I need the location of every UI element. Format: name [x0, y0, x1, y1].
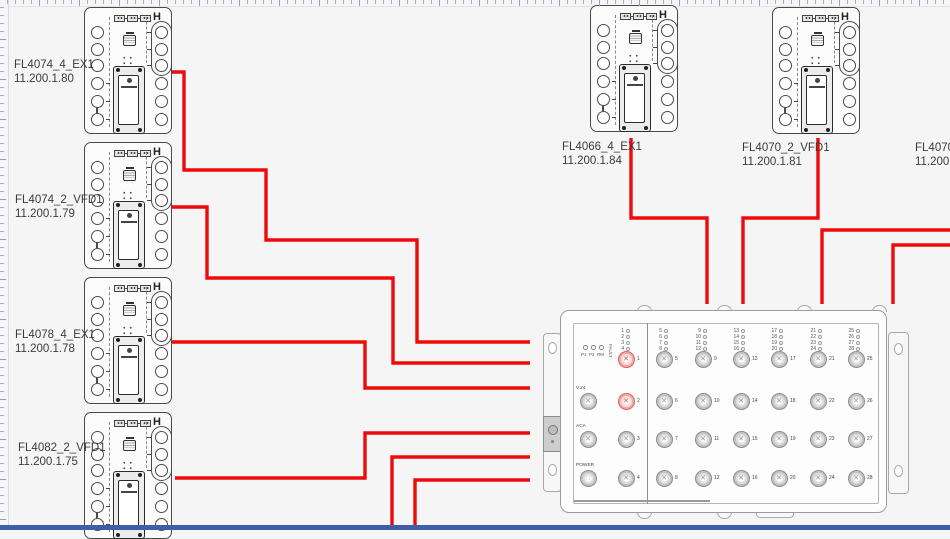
m12-port-circle: [661, 111, 674, 124]
switch-port-17: [771, 351, 788, 368]
device-ip: 11.200.1.81: [742, 155, 830, 169]
switch-port-27: [848, 431, 865, 448]
tick-mark: [835, 65, 839, 66]
led-circle: [664, 335, 669, 340]
connector-icon: [629, 33, 642, 44]
tick-mark: [147, 302, 151, 303]
device-label: FL4066_4_EX111.200.1.84: [562, 140, 642, 168]
screw-icon: [116, 533, 120, 537]
guide-line: [109, 422, 110, 532]
switch-port-number: 11: [714, 436, 719, 442]
connection-right-line-1-to-switch[interactable]: [822, 230, 950, 304]
terminal-block-icon: [127, 420, 138, 427]
terminal-link: [125, 18, 128, 19]
m12-port-circle: [91, 383, 104, 396]
m12-port-circle: [91, 296, 104, 309]
switch-port-28: [848, 470, 865, 487]
terminal-block-icon: [127, 15, 138, 22]
logo-icon: [127, 213, 132, 218]
led-circle: [741, 329, 746, 334]
terminal-block-icon: [620, 13, 631, 20]
m12-port-circle: [779, 43, 792, 56]
switch-port-8: [656, 470, 673, 487]
port-link-line: [96, 377, 97, 383]
status-led-label: P1: [581, 352, 587, 357]
device-module-FL4070_2_VFD1[interactable]: H: [772, 7, 860, 134]
m12-port-circle: [91, 230, 104, 243]
device-module-FL4074_4_EX1[interactable]: H: [84, 7, 172, 134]
tick-mark: [835, 32, 839, 33]
switch-port-1: [618, 351, 635, 368]
switch-port-15: [733, 431, 750, 448]
ruler-vertical: [0, 0, 6, 530]
device-module-FL4066_4_EX1[interactable]: H: [590, 5, 678, 132]
m12-port-circle: [91, 95, 104, 108]
switch-port-number: 2: [637, 398, 640, 404]
switch-port-14: [733, 393, 750, 410]
device-ip: 11.200.1.80: [14, 72, 94, 86]
m12-port-circle: [661, 24, 674, 37]
m12-port-circle: [155, 77, 168, 90]
tick-mark: [147, 437, 151, 438]
connector-icon: [123, 35, 136, 46]
m12-port-circle: [155, 365, 168, 378]
led-circle: [703, 335, 708, 340]
label-bar: [121, 491, 137, 494]
led-column: 13141516: [731, 328, 745, 352]
device-label: FL4070_2_VFD111.200.1.81: [742, 141, 830, 169]
m12-port-circle: [597, 57, 610, 70]
m12-port-circle: [597, 75, 610, 88]
terminal-link: [125, 288, 128, 289]
device-body: [113, 201, 145, 270]
screw-icon: [116, 68, 120, 72]
switch-port-16: [733, 470, 750, 487]
label-bar: [627, 84, 643, 87]
device-ip: 11.200.1.84: [562, 154, 642, 168]
tick-mark: [147, 200, 151, 201]
led-circle: [818, 335, 823, 340]
m12-port-circle: [91, 43, 104, 56]
device-label: FL4074_4_EX111.200.1.80: [14, 58, 94, 86]
connection-FL4078_4_EX1-to-switch[interactable]: [172, 342, 530, 388]
m12-port-circle: [155, 26, 168, 39]
status-led-label: RM: [597, 352, 604, 357]
device-body: [801, 66, 833, 135]
screw-icon: [138, 398, 142, 402]
screw-icon: [644, 126, 648, 130]
label-bar: [121, 356, 137, 359]
m12-port-circle: [91, 313, 104, 326]
guide-line: [109, 152, 110, 262]
port-link-line: [96, 512, 97, 518]
panel-divider: [647, 323, 648, 504]
switch-port-number: 15: [752, 436, 758, 442]
terminal-link: [826, 18, 829, 19]
switch-port-number: 23: [829, 436, 835, 442]
m12-port-circle: [779, 26, 792, 39]
screw-icon: [644, 66, 648, 70]
fault-led-label: FAULT: [608, 344, 613, 358]
connection-FL4074_2_VFD1-to-switch[interactable]: [170, 207, 530, 363]
guide-line: [146, 287, 147, 333]
switch-port-2: [618, 393, 635, 410]
m12-port-circle: [155, 329, 168, 342]
screw-icon: [138, 338, 142, 342]
screw-icon: [116, 473, 120, 477]
switch-port-number: 18: [790, 398, 796, 404]
screw-hole-icon: [894, 465, 903, 477]
terminal-block-icon: [114, 15, 125, 22]
device-faceplate: [118, 480, 140, 530]
led-circle: [741, 341, 746, 346]
led-circle: [703, 329, 708, 334]
tick-mark: [653, 63, 657, 64]
switch-port-21: [810, 351, 827, 368]
label-bar: [121, 86, 137, 89]
central-switch[interactable]: P1P2RMFAULT12345678910111213141516171819…: [560, 310, 887, 513]
screw-icon: [826, 128, 830, 132]
connection-bottom-line-1-to-switch[interactable]: [392, 457, 530, 527]
switch-port-5: [656, 351, 673, 368]
device-ip: 11.200.1.78: [15, 342, 95, 356]
m12-port-circle: [91, 248, 104, 261]
m12-port-circle: [155, 248, 168, 261]
connection-FL4066_4_EX1-to-switch[interactable]: [631, 138, 707, 304]
logo-icon: [633, 76, 638, 81]
switch-port-9: [695, 351, 712, 368]
logo-icon: [127, 78, 132, 83]
connector-icon: [123, 170, 136, 181]
ruler-horizontal: [0, 0, 950, 6]
led-circle: [818, 341, 823, 346]
m12-port-circle: [779, 95, 792, 108]
connection-right-line-2-to-switch[interactable]: [893, 245, 950, 304]
switch-port-number: 10: [714, 398, 720, 404]
led-column: 17181920: [769, 328, 783, 352]
device-body: [619, 64, 651, 133]
connector-icon: [123, 440, 136, 451]
switch-port-11: [695, 431, 712, 448]
m12-port-circle: [155, 464, 168, 477]
m12-port-circle: [91, 482, 104, 495]
terminal-link: [125, 423, 128, 424]
tick-mark: [147, 454, 151, 455]
device-name: FL4078_4_EX1: [15, 328, 95, 342]
m12-port-circle: [661, 41, 674, 54]
led-circle: [664, 341, 669, 346]
m12-port-circle: [155, 95, 168, 108]
screw-icon: [116, 338, 120, 342]
switch-port-ACA: [580, 431, 597, 448]
switch-port-number: 25: [867, 356, 873, 362]
guide-line: [797, 17, 798, 127]
led-column: 5678: [654, 328, 668, 352]
screw-icon: [116, 128, 120, 132]
screw-icon: [116, 203, 120, 207]
m12-port-circle: [155, 230, 168, 243]
tick-mark: [106, 389, 110, 390]
switch-port-number: 17: [790, 356, 796, 362]
screw-icon: [622, 66, 626, 70]
m12-port-circle: [155, 296, 168, 309]
label-bar: [809, 86, 825, 89]
tick-mark: [653, 30, 657, 31]
screw-icon: [138, 128, 142, 132]
tick-mark: [106, 371, 110, 372]
terminal-block-icon: [815, 15, 826, 22]
terminal-link: [138, 153, 141, 154]
guide-line: [146, 17, 147, 63]
connector-icon: [123, 305, 136, 316]
screw-icon: [116, 263, 120, 267]
switch-port-7: [656, 431, 673, 448]
diagram-canvas[interactable]: P1P2RMFAULT12345678910111213141516171819…: [0, 0, 950, 530]
m12-port-circle: [91, 161, 104, 174]
switch-port-number: 5: [675, 356, 678, 362]
led-circle: [779, 335, 784, 340]
tick-mark: [106, 254, 110, 255]
switch-port-20: [771, 470, 788, 487]
port-link-line: [784, 107, 785, 113]
device-name: FL4074_2_VFD1: [15, 193, 103, 207]
device-module-FL4078_4_EX1[interactable]: H: [84, 277, 172, 404]
m12-port-circle: [155, 43, 168, 56]
switch-port-number: 28: [867, 475, 873, 481]
terminal-block-icon: [114, 150, 125, 157]
led-circle: [664, 329, 669, 334]
m12-port-circle: [91, 26, 104, 39]
led-circle: [741, 335, 746, 340]
led-column: 25262728: [846, 328, 860, 352]
switch-port-number: 4: [637, 475, 640, 481]
m12-port-circle: [155, 347, 168, 360]
connection-bottom-line-2-to-switch[interactable]: [415, 480, 530, 527]
device-label: FL4074_2_VFD111.200.1.79: [15, 193, 103, 221]
led-circle: [856, 341, 861, 346]
device-module-FL4082_2_VFD1[interactable]: H: [84, 412, 172, 539]
tick-mark: [612, 99, 616, 100]
guide-line: [615, 15, 616, 125]
screw-icon: [826, 68, 830, 72]
screw-icon: [804, 128, 808, 132]
guide-line: [146, 152, 147, 198]
port-link-line: [602, 105, 603, 111]
switch-port-18: [771, 393, 788, 410]
m12-port-circle: [155, 59, 168, 72]
tick-mark: [147, 319, 151, 320]
terminal-block-icon: [114, 420, 125, 427]
m12-port-circle: [155, 113, 168, 126]
m12-port-circle: [661, 75, 674, 88]
switch-port-number: 20: [790, 475, 796, 481]
terminal-link: [631, 16, 634, 17]
m12-port-circle: [597, 24, 610, 37]
led-circle: [703, 341, 708, 346]
m12-port-circle: [597, 41, 610, 54]
device-ip: 11.200.1.79: [15, 207, 103, 221]
tick-mark: [794, 119, 798, 120]
tick-mark: [106, 101, 110, 102]
switch-port-number: 16: [752, 475, 758, 481]
device-body: [113, 336, 145, 405]
m12-port-circle: [843, 95, 856, 108]
m12-port-circle: [155, 194, 168, 207]
guide-line: [146, 422, 147, 468]
switch-port-10: [695, 393, 712, 410]
switch-port-25: [848, 351, 865, 368]
m12-port-circle: [155, 500, 168, 513]
logo-icon: [815, 78, 820, 83]
status-led-RM: [599, 345, 604, 350]
m12-port-circle: [91, 113, 104, 126]
switch-port-6: [656, 393, 673, 410]
terminal-link: [644, 16, 647, 17]
m12-port-circle: [91, 365, 104, 378]
switch-port-number: 8: [675, 475, 678, 481]
m12-port-circle: [91, 500, 104, 513]
special-port-label: V.24: [576, 386, 585, 391]
device-faceplate: [118, 345, 140, 395]
terminal-block-icon: [633, 13, 644, 20]
tick-mark: [612, 81, 616, 82]
logo-icon: [127, 483, 132, 488]
screw-icon: [138, 263, 142, 267]
connector-icon: [811, 35, 824, 46]
tick-mark: [106, 236, 110, 237]
tick-mark: [106, 506, 110, 507]
device-faceplate: [806, 75, 828, 125]
device-label: FL4082_2_VFD111.200.1.75: [18, 441, 106, 469]
device-name: FL4074_4_EX1: [14, 58, 94, 72]
terminal-block-icon: [802, 15, 813, 22]
m12-port-circle: [155, 383, 168, 396]
led-circle: [626, 329, 631, 334]
device-faceplate: [118, 210, 140, 260]
tick-mark: [106, 119, 110, 120]
port-link-line: [96, 107, 97, 113]
tick-mark: [794, 101, 798, 102]
m12-port-circle: [779, 113, 792, 126]
special-port-label: ACA: [576, 424, 586, 429]
switch-port-number: 13: [752, 356, 758, 362]
switch-port-V.24: [580, 393, 597, 410]
m12-port-circle: [779, 59, 792, 72]
screw-icon: [138, 68, 142, 72]
led-circle: [779, 329, 784, 334]
m12-port-circle: [843, 113, 856, 126]
tick-mark: [147, 167, 151, 168]
switch-port-number: 27: [867, 436, 873, 442]
status-led-P1: [583, 345, 588, 350]
m12-port-circle: [843, 77, 856, 90]
m12-port-circle: [843, 26, 856, 39]
switch-port-POWER: [580, 470, 597, 487]
switch-port-number: 6: [675, 398, 678, 404]
switch-port-number: 7: [675, 436, 678, 442]
tick-mark: [653, 47, 657, 48]
device-label: FL4078_4_EX111.200.1.78: [15, 328, 95, 356]
tick-mark: [794, 83, 798, 84]
switch-port-22: [810, 393, 827, 410]
m12-port-circle: [779, 77, 792, 90]
switch-port-number: 21: [829, 356, 835, 362]
m12-port-circle: [597, 111, 610, 124]
m12-port-circle: [155, 313, 168, 326]
screw-hole-icon: [548, 464, 557, 476]
status-led-label: P2: [589, 352, 595, 357]
led-column: 21222324: [808, 328, 822, 352]
m12-port-circle: [597, 93, 610, 106]
connection-FL4074_4_EX1-to-switch[interactable]: [172, 72, 530, 342]
m12-port-circle: [155, 482, 168, 495]
switch-port-number: 19: [790, 436, 796, 442]
screw-icon: [138, 203, 142, 207]
guide-line: [109, 17, 110, 127]
switch-port-number: 9: [714, 356, 717, 362]
terminal-link: [813, 18, 816, 19]
m12-port-circle: [155, 161, 168, 174]
device-name: FL4066_4_EX1: [562, 140, 642, 154]
led-circle: [626, 335, 631, 340]
m12-port-circle: [843, 59, 856, 72]
switch-port-24: [810, 470, 827, 487]
switch-port-26: [848, 393, 865, 410]
led-circle: [856, 335, 861, 340]
terminal-link: [138, 288, 141, 289]
tick-mark: [106, 83, 110, 84]
screw-icon: [622, 126, 626, 130]
switch-port-23: [810, 431, 827, 448]
device-label-offscreen: FL4070_11.200.1: [915, 141, 950, 169]
switch-port-19: [771, 431, 788, 448]
logo-icon: [127, 348, 132, 353]
tick-mark: [147, 184, 151, 185]
device-faceplate: [624, 73, 646, 123]
device-name: FL4070_: [915, 141, 950, 155]
device-body: [113, 66, 145, 135]
device-ip: 11.200.1: [915, 155, 950, 169]
tick-mark: [147, 470, 151, 471]
label-bar: [121, 221, 137, 224]
screw-icon: [138, 533, 142, 537]
special-port-label: POWER: [576, 463, 594, 468]
switch-port-number: 12: [714, 475, 720, 481]
led-circle: [818, 329, 823, 334]
m12-port-circle: [843, 43, 856, 56]
m12-port-circle: [155, 431, 168, 444]
terminal-block-icon: [114, 285, 125, 292]
terminal-block-icon: [127, 285, 138, 292]
device-ip: 11.200.1.75: [18, 455, 106, 469]
status-led-P2: [591, 345, 596, 350]
tick-mark: [147, 49, 151, 50]
switch-port-number: 24: [829, 475, 835, 481]
window-bottom-bar: [0, 525, 950, 530]
terminal-link: [138, 423, 141, 424]
tick-mark: [147, 65, 151, 66]
m12-port-circle: [661, 57, 674, 70]
switch-port-number: 14: [752, 398, 758, 404]
port-link-line: [96, 242, 97, 248]
tick-mark: [106, 353, 110, 354]
panel-strip: [574, 500, 710, 502]
m12-port-circle: [155, 212, 168, 225]
led-circle: [779, 341, 784, 346]
screw-icon: [116, 398, 120, 402]
guide-line: [834, 17, 835, 63]
tick-mark: [106, 218, 110, 219]
